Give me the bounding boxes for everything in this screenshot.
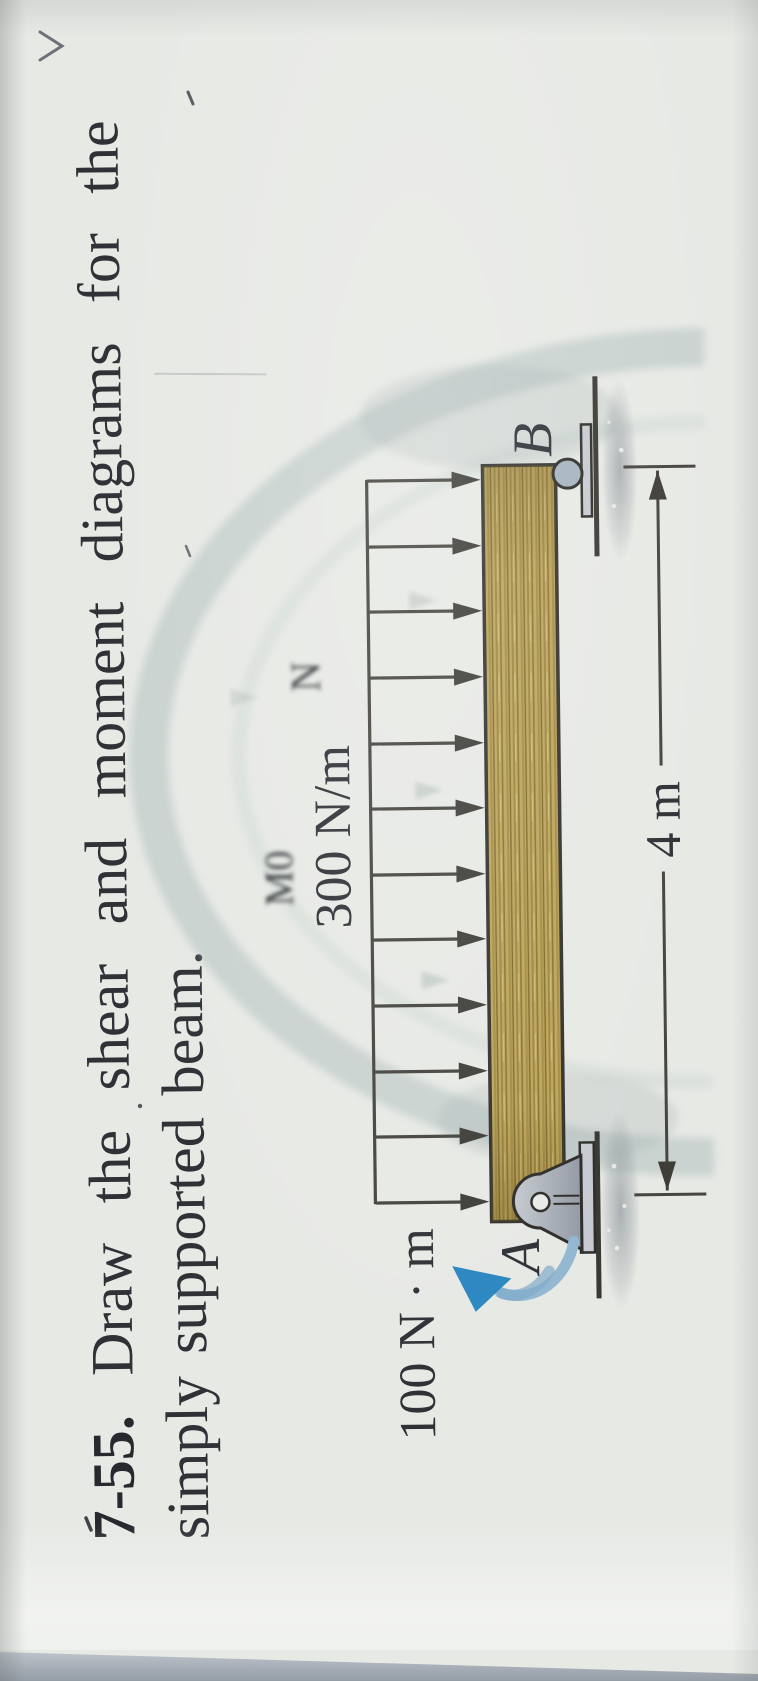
photo-canvas: 7-55. Draw the shear and moment diagrams… — [0, 0, 758, 1681]
corner-check-mark — [40, 32, 62, 60]
left-edge-shadow — [0, 0, 26, 1681]
pencil-marks — [0, 0, 758, 1681]
top-edge-shadow — [0, 0, 758, 36]
speck-mark — [186, 546, 190, 556]
speck-mark — [86, 1518, 91, 1530]
right-edge-shadow — [732, 0, 758, 1681]
speck-mark — [138, 1104, 142, 1108]
speck-mark — [188, 92, 193, 104]
